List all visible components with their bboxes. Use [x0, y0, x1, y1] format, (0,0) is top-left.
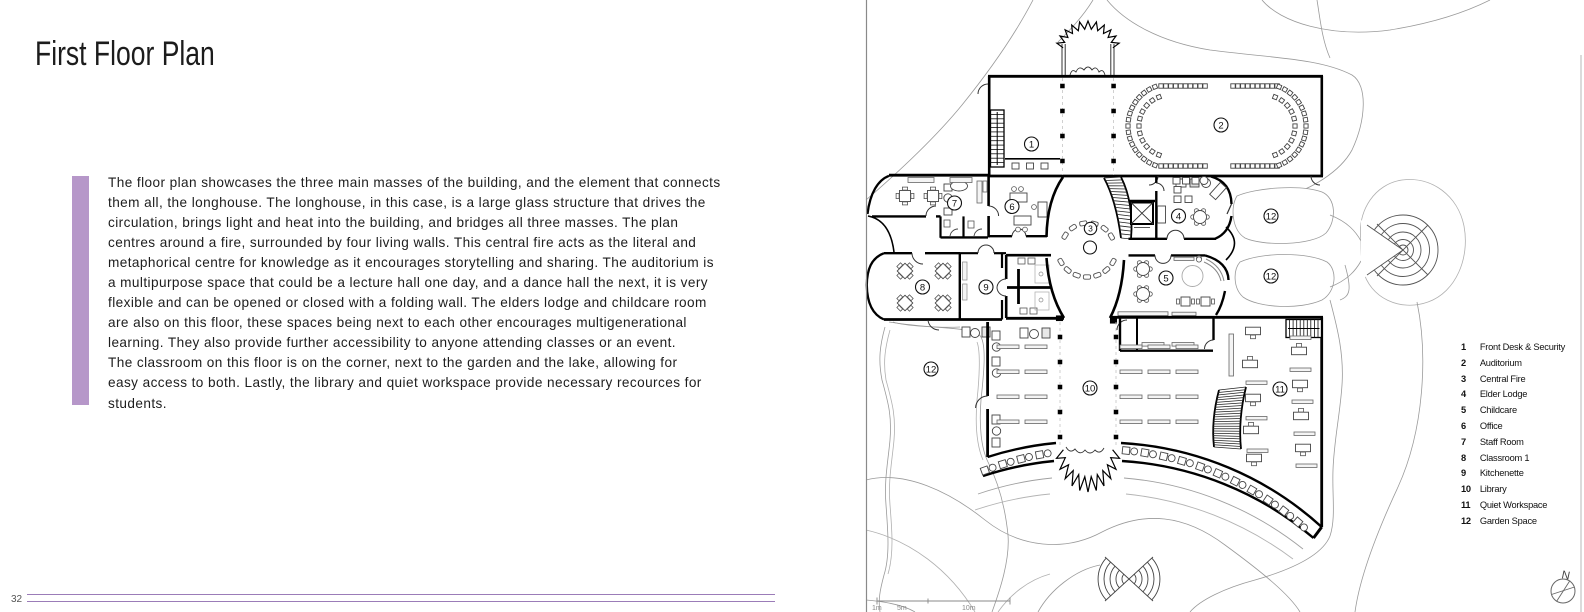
svg-text:10: 10 [1085, 383, 1096, 394]
svg-text:10m: 10m [962, 605, 976, 612]
svg-text:7: 7 [952, 198, 957, 209]
svg-text:3: 3 [1088, 224, 1093, 234]
svg-text:1: 1 [1029, 139, 1034, 150]
svg-text:2: 2 [1218, 120, 1223, 131]
svg-text:12: 12 [1266, 271, 1277, 282]
svg-text:1m: 1m [872, 605, 882, 612]
svg-text:12: 12 [926, 364, 937, 375]
svg-text:5: 5 [1163, 273, 1168, 284]
svg-text:8: 8 [920, 282, 925, 293]
svg-text:9: 9 [983, 282, 988, 293]
svg-text:4: 4 [1176, 211, 1181, 222]
svg-text:12: 12 [1266, 211, 1277, 222]
svg-text:11: 11 [1275, 384, 1285, 395]
svg-text:6: 6 [1009, 202, 1014, 213]
svg-text:5m: 5m [897, 605, 907, 612]
